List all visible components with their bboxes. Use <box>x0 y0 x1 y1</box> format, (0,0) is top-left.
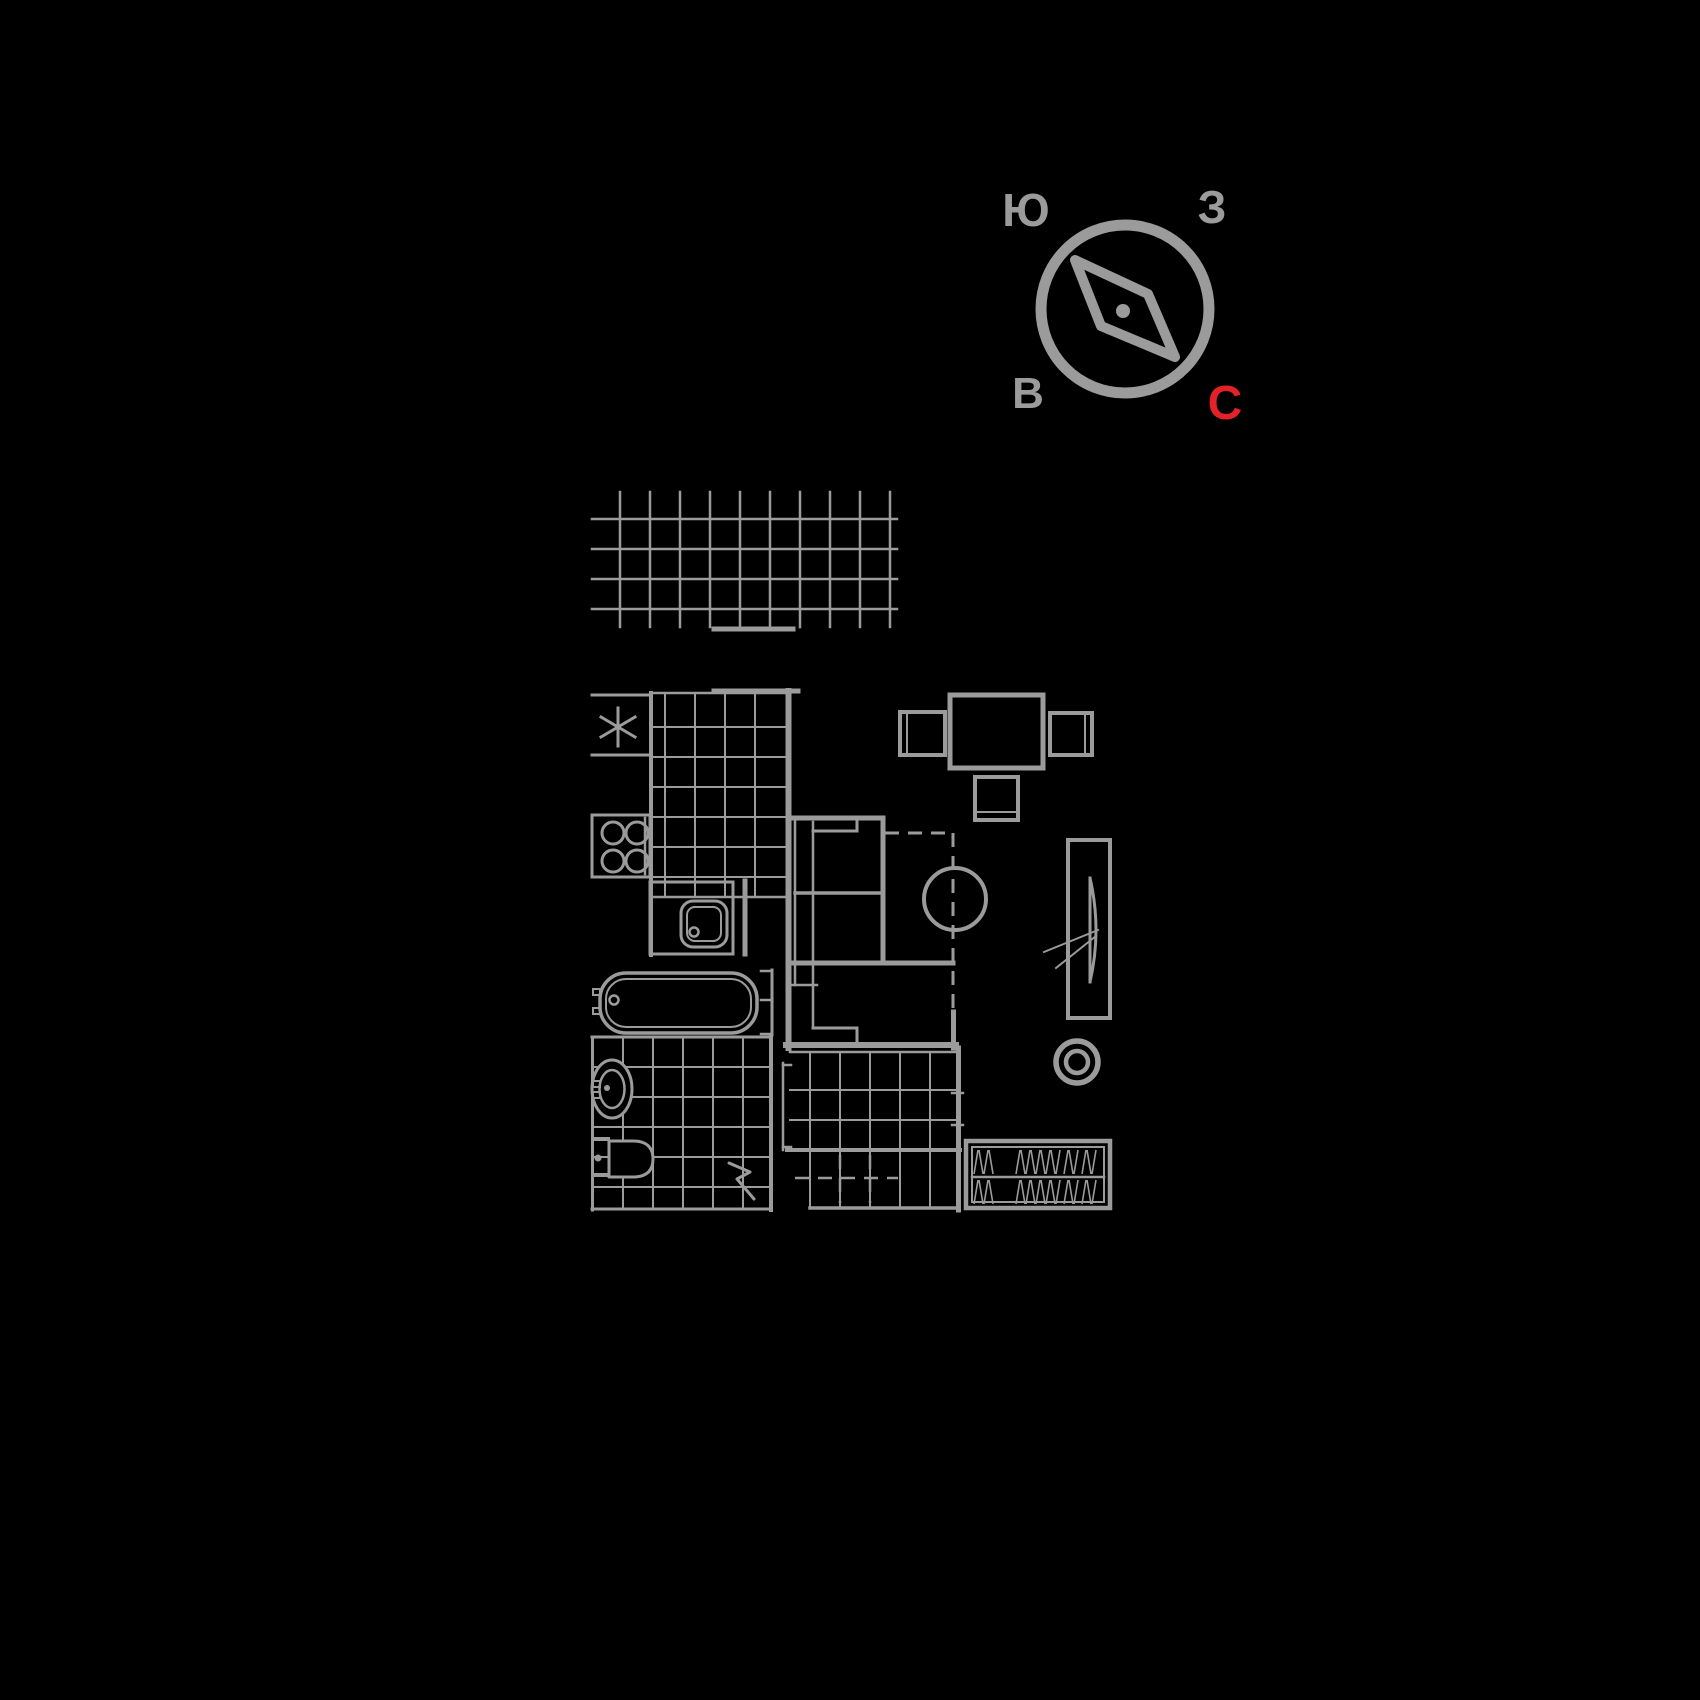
loggia-tile-grid <box>592 492 897 629</box>
compass-label-west: З <box>1198 181 1227 233</box>
sofa-bed <box>788 818 953 1028</box>
wardrobe-cabinet <box>1044 840 1110 1018</box>
floor-plan-canvas: Ю З В С <box>0 0 1700 1700</box>
compass-label-north: С <box>1208 377 1243 430</box>
compass-center-dot-icon <box>1116 304 1130 318</box>
kitchen-sink-icon <box>650 882 733 954</box>
round-coffee-table <box>924 868 986 930</box>
hallway-tile-grid <box>790 1052 958 1208</box>
entry-door-zigzag-icon <box>729 1163 754 1199</box>
vent-asterisk-icon <box>601 708 635 746</box>
apartment-floor-plan <box>592 492 1110 1210</box>
stove-icon <box>592 815 650 877</box>
washbasin-icon <box>592 1060 632 1118</box>
bathtub-icon <box>593 970 772 1035</box>
kitchen-tile-grid <box>651 693 787 897</box>
compass-label-south: Ю <box>1002 184 1049 236</box>
shoe-cabinet-hatched <box>966 1141 1110 1208</box>
dining-table-and-chairs <box>900 695 1092 820</box>
zone-divider-dashed-line <box>885 833 953 1043</box>
compass-label-east: В <box>1012 369 1044 418</box>
stool-ring-icon <box>1056 1041 1098 1083</box>
compass-rose: Ю З В С <box>1002 181 1242 430</box>
